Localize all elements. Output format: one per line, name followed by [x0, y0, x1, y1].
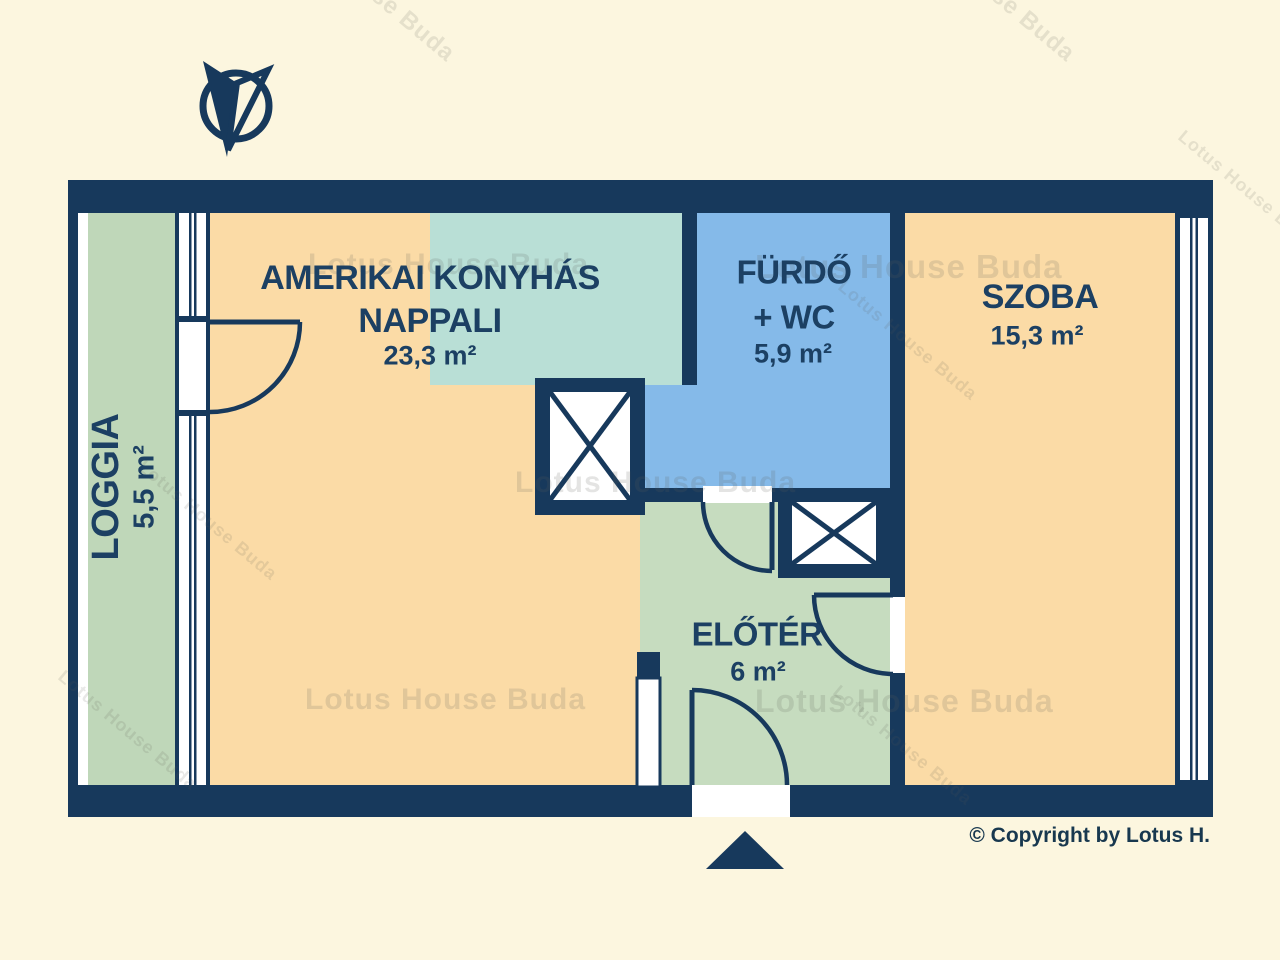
- room-label-living-line2: NAPPALI: [358, 304, 501, 338]
- wall-kitchen-bathroom: [682, 213, 697, 385]
- window-glazing-line: [194, 416, 197, 785]
- room-window-band: [1180, 218, 1208, 780]
- room-label-room: SZOBA: [982, 280, 1099, 314]
- room-door-opening: [890, 597, 905, 673]
- compass-icon: [203, 61, 269, 157]
- window-glazing-line: [189, 213, 192, 318]
- area-label-hall: 6 m²: [730, 659, 786, 686]
- window-glazing-line: [194, 213, 197, 318]
- room-label-hall: ELŐTÉR: [692, 618, 823, 651]
- door-jamb: [179, 410, 206, 416]
- room-label-bathroom-line2: + WC: [753, 301, 834, 334]
- area-label-room: 15,3 m²: [990, 323, 1083, 350]
- door-jamb: [179, 316, 206, 322]
- pillar: [637, 652, 660, 787]
- entrance-door-opening: [692, 785, 790, 817]
- floor-plan-page: Lotus House Buda Lotus House Buda Lotus …: [0, 0, 1280, 960]
- room-label-living-line1: AMERIKAI KONYHÁS: [260, 261, 600, 295]
- window-glazing-line: [1196, 218, 1199, 780]
- area-label-living: 23,3 m²: [383, 343, 476, 370]
- room-label-bathroom-line1: FÜRDŐ: [737, 256, 852, 289]
- watermark-text: Lotus House Buda: [515, 466, 796, 500]
- area-label-bathroom: 5,9 m²: [754, 341, 832, 368]
- pillar-cap: [637, 652, 660, 678]
- copyright-text: © Copyright by Lotus H.: [969, 824, 1210, 848]
- area-label-loggia: 5,5 m²: [131, 445, 160, 529]
- shaft-symbol-2: [778, 488, 890, 578]
- watermark-text: Lotus House Buda: [305, 683, 586, 717]
- room-label-loggia: LOGGIA: [87, 414, 125, 561]
- watermark-text: Lotus House Buda: [755, 683, 1054, 720]
- window-glazing-line: [1190, 218, 1193, 780]
- entrance-arrow-icon: [706, 831, 784, 869]
- pillar-body: [637, 678, 660, 787]
- window-glazing-line: [189, 416, 192, 785]
